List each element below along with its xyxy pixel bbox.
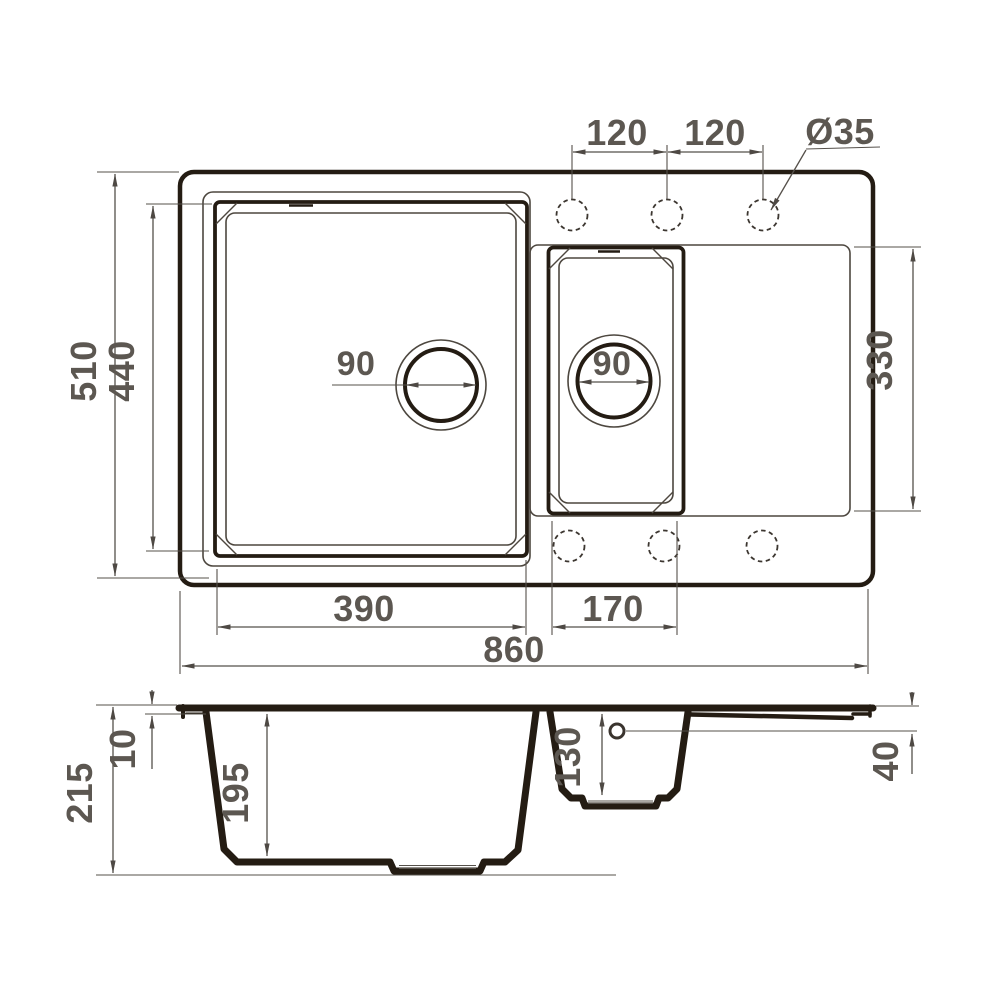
top-view: 120 120 Ø35 510 440 330 90 90 390 170 86… [63,111,921,674]
faucet-hole-bottom-1 [554,531,585,562]
dim-rim-height: 10 [102,728,143,769]
dim-main-bowl-depth: 440 [101,340,142,402]
top-view-dimension-lines [115,150,913,666]
hole-diameter-leader [771,150,806,210]
technical-drawing: 120 120 Ø35 510 440 330 90 90 390 170 86… [0,0,1000,1000]
sink-dimension-diagram: 120 120 Ø35 510 440 330 90 90 390 170 86… [0,0,1000,1000]
top-view-extension-lines [97,145,921,674]
dim-main-drain-diameter: 90 [337,345,376,383]
section-drainboard-underside [691,715,852,719]
dim-hole-diameter: Ø35 [805,111,875,152]
dim-overall-depth: 510 [63,340,104,402]
faucet-hole-top-1 [557,200,588,231]
dim-edge-offset: 40 [865,740,906,781]
dim-half-bowl-width: 170 [582,588,644,629]
faucet-hole-bottom-3 [747,531,778,562]
faucet-hole-bottom-2 [649,531,680,562]
dim-drainboard-depth: 330 [859,329,900,391]
faucet-hole-top-2 [652,200,683,231]
faucet-holes [554,200,779,562]
dim-main-bowl-section-depth: 195 [215,762,256,824]
dim-half-bowl-section-depth: 130 [547,726,588,788]
dim-overall-height: 215 [59,762,100,824]
dim-hole-spacing-left: 120 [586,112,648,153]
section-view: 215 10 195 130 40 [59,690,919,875]
overflow-hole [610,724,624,738]
dim-hole-spacing-right: 120 [684,112,746,153]
dim-main-bowl-width: 390 [333,588,395,629]
dim-overall-width: 860 [483,629,545,670]
dim-half-drain-diameter: 90 [593,345,632,383]
